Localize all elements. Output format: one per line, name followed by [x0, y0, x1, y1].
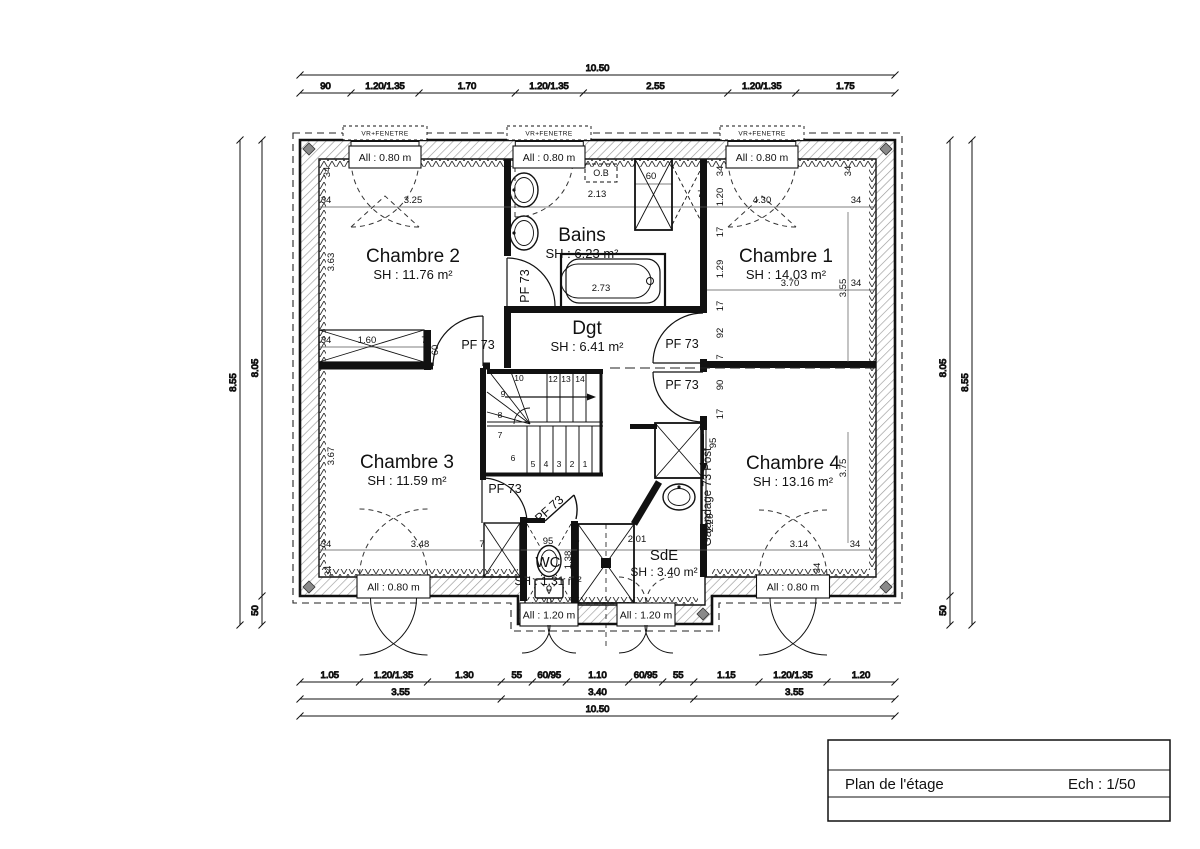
dimension-label: 3.40	[588, 687, 607, 698]
window-sill-label: All : 1.20 m	[523, 610, 576, 622]
window-sill-label: All : 0.80 m	[523, 152, 576, 164]
shower-icon	[578, 524, 634, 648]
roof-overhang-outline	[293, 133, 902, 631]
door-label-pf73: PF 73	[665, 337, 698, 351]
stair-step-number: 12	[548, 374, 558, 384]
dimension-label: 2.55	[646, 81, 665, 92]
dimension-label: 3.55	[838, 279, 849, 298]
stair-step-number: 9	[501, 389, 506, 399]
room-name-chambre4: Chambre 4	[746, 453, 840, 474]
dim-row: 901.20/1.351.701.20/1.352.551.20/1.351.7…	[297, 81, 899, 97]
stair-step-number: 10	[514, 373, 524, 383]
stair-step-number: 3	[557, 459, 562, 469]
dimension-label: 34	[322, 167, 333, 178]
dimension-label: 90	[715, 380, 726, 391]
dimension-label: 3.48	[411, 539, 430, 550]
dim-row: 10.50	[297, 704, 899, 720]
dimension-label: 34	[321, 539, 332, 550]
dimension-label: 7	[574, 539, 579, 550]
dimension-label: 1.20/1.35	[374, 670, 414, 681]
dimension-label: 55	[673, 670, 684, 681]
dimension-label: 50	[938, 605, 949, 616]
door-label-pf73: PF 73	[461, 338, 494, 352]
sink-icon	[510, 173, 538, 250]
floor-plan-page: VR+FENETRE VR+FENETRE VR+FENETRE All : 0…	[0, 0, 1200, 849]
dimension-label: 1.75	[836, 81, 855, 92]
ob-label: O.B	[593, 168, 609, 178]
room-area-chambre3: SH : 11.59 m²	[367, 473, 447, 488]
dimension-label: 2.73	[592, 283, 611, 294]
dimension-label: 95	[708, 438, 719, 449]
dim-row: 1.051.20/1.351.305560/951.1060/95551.151…	[297, 670, 899, 686]
dimension-label: 34	[323, 566, 334, 577]
dimension-label: 34	[843, 166, 854, 177]
window-header-label: VR+FENETRE	[525, 131, 572, 138]
dimension-label: 60/95	[537, 670, 561, 681]
dimension-label: 8.05	[250, 359, 261, 378]
stair-step-number: 8	[498, 410, 503, 420]
dimension-label: 60	[430, 345, 441, 356]
dimension-label: 3.55	[785, 687, 804, 698]
dimension-label: 1.20	[715, 188, 726, 207]
dimension-label: 1.10	[588, 670, 607, 681]
dim-row: 8.55	[960, 137, 976, 629]
dimension-label: 1.15	[717, 670, 736, 681]
stair-step-number: 7	[498, 430, 503, 440]
room-name-wc: WC	[536, 554, 561, 571]
dimension-label: 7	[715, 354, 726, 359]
dim-row: 3.553.403.55	[297, 687, 899, 703]
stair-step-number: 6	[511, 453, 516, 463]
dim-row: 10.50	[297, 63, 899, 79]
dimension-label: 1.20/1.35	[773, 670, 813, 681]
dimension-label: 10.50	[586, 63, 610, 74]
dimension-label: 90	[320, 81, 331, 92]
dimension-label: 8.55	[960, 373, 971, 392]
door-label-pf73: PF 73	[665, 378, 698, 392]
dimension-label: 1.29	[715, 260, 726, 279]
floor-plan-drawing: VR+FENETRE VR+FENETRE VR+FENETRE All : 0…	[0, 0, 1200, 849]
dimension-label: 1.20	[852, 670, 871, 681]
dimension-label: 3.25	[404, 195, 423, 206]
window-sill-label: All : 0.80 m	[736, 152, 789, 164]
room-name-dgt: Dgt	[572, 318, 602, 339]
dimension-label: 1.20/1.35	[742, 81, 782, 92]
room-area-dgt: SH : 6.41 m²	[551, 339, 625, 354]
dimension-label: 34	[851, 278, 862, 289]
dimension-label: 8.05	[938, 359, 949, 378]
dimension-label: 7	[507, 195, 512, 206]
window-sill-label: All : 0.80 m	[767, 582, 820, 594]
room-area-chambre4: SH : 13.16 m²	[753, 474, 834, 489]
window-header-label: VR+FENETRE	[738, 131, 785, 138]
dim-row: 8.55	[228, 137, 244, 629]
stair-step-number: 14	[575, 374, 585, 384]
dimension-label: 3.14	[790, 539, 809, 550]
duct-sde	[655, 423, 703, 478]
dimension-label: 34	[715, 166, 726, 177]
room-area-wc: SH : 1.31 m²	[514, 574, 581, 588]
dimension-label: 1.38	[563, 551, 574, 570]
window-sill-label: All : 0.80 m	[367, 582, 420, 594]
room-area-sde: SH : 3.40 m²	[630, 565, 697, 579]
room-name-bains: Bains	[558, 225, 606, 246]
dimension-label: 92	[715, 328, 726, 339]
room-name-chambre2: Chambre 2	[366, 246, 460, 267]
dimension-label: 17	[715, 301, 726, 312]
dimension-label: 60	[646, 171, 657, 182]
dimension-label: 3.70	[781, 278, 800, 289]
room-name-chambre3: Chambre 3	[360, 452, 454, 473]
title-block: Plan de l'étage Ech : 1/50	[828, 740, 1170, 821]
duct-bains	[635, 159, 703, 230]
title-block-title: Plan de l'étage	[845, 776, 944, 793]
dimension-label: 17	[715, 227, 726, 238]
dimension-label: 8.55	[228, 373, 239, 392]
dimension-label: 7	[479, 539, 484, 550]
dimension-label: 1.70	[458, 81, 477, 92]
room-area-chambre2: SH : 11.76 m²	[373, 267, 453, 282]
dimension-label: 10.50	[586, 704, 610, 715]
dimension-label: 55	[512, 670, 523, 681]
dimension-label: 1.05	[321, 670, 340, 681]
dimension-label: 50	[250, 605, 261, 616]
dimension-label: 34	[321, 195, 332, 206]
dimension-label: 1.20/1.35	[365, 81, 405, 92]
window-sill-label: All : 0.80 m	[359, 152, 412, 164]
dimension-label: 3.55	[391, 687, 410, 698]
dimension-label: 17	[715, 409, 726, 420]
dim-row: 8.0550	[938, 137, 954, 629]
door-label-pf73: PF 73	[518, 269, 532, 302]
dimension-label: 34	[850, 539, 861, 550]
dimension-label: 95	[543, 536, 554, 547]
door-label-pf73: PF 73	[532, 493, 566, 526]
dimension-label: 1.60	[358, 335, 377, 346]
stair-step-number: 1	[583, 459, 588, 469]
window-sill-label: All : 1.20 m	[620, 610, 673, 622]
stair-step-number: 5	[531, 459, 536, 469]
room-name-sde: SdE	[650, 547, 678, 564]
stair-step-number: 13	[561, 374, 571, 384]
stair-step-numbers: 12345678910121314	[498, 373, 588, 469]
dimension-label: 2.13	[588, 189, 607, 200]
dimension-label: 7	[421, 335, 426, 346]
window-header-label: VR+FENETRE	[361, 131, 408, 138]
dimension-label: 7	[697, 189, 702, 200]
stair-step-number: 4	[544, 459, 549, 469]
dimension-label: 1.20/1.35	[529, 81, 569, 92]
dimension-label: 1.30	[455, 670, 474, 681]
title-block-scale: Ech : 1/50	[1068, 776, 1136, 793]
room-area-bains: SH : 6.23 m²	[546, 246, 620, 261]
dimension-label: 2.26	[705, 514, 716, 533]
dimension-label: 2.01	[628, 534, 647, 545]
dimension-label: 34	[321, 335, 332, 346]
stair-step-number: 2	[570, 459, 575, 469]
dimension-label: 3.67	[326, 447, 337, 466]
dimension-label: 60/95	[634, 670, 658, 681]
dimension-label: 3.75	[838, 459, 849, 478]
dimension-label: 34	[812, 563, 823, 574]
dimension-label: 4.30	[753, 195, 772, 206]
dimension-label: 3.63	[326, 253, 337, 272]
room-name-chambre1: Chambre 1	[739, 246, 833, 267]
bathtub-icon	[561, 254, 665, 308]
dimension-label: 34	[851, 195, 862, 206]
dim-row: 8.0550	[250, 137, 266, 629]
sink-sde-icon	[663, 484, 695, 510]
door-label-pf73: PF 73	[488, 482, 521, 496]
